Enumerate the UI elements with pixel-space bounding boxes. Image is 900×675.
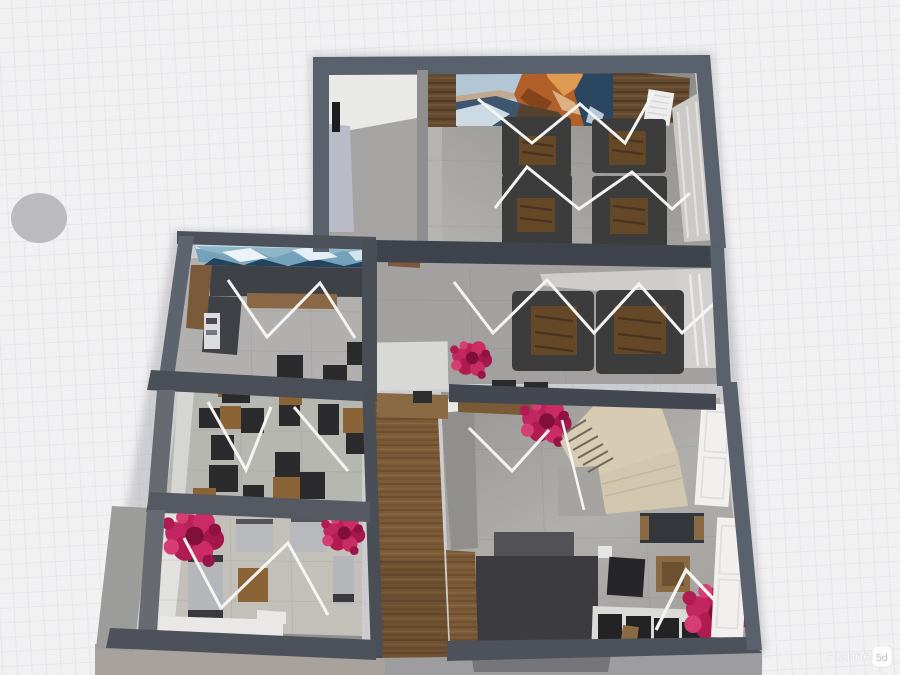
svg-text:Planner: Planner [826,649,876,665]
svg-text:5d: 5d [876,652,888,664]
